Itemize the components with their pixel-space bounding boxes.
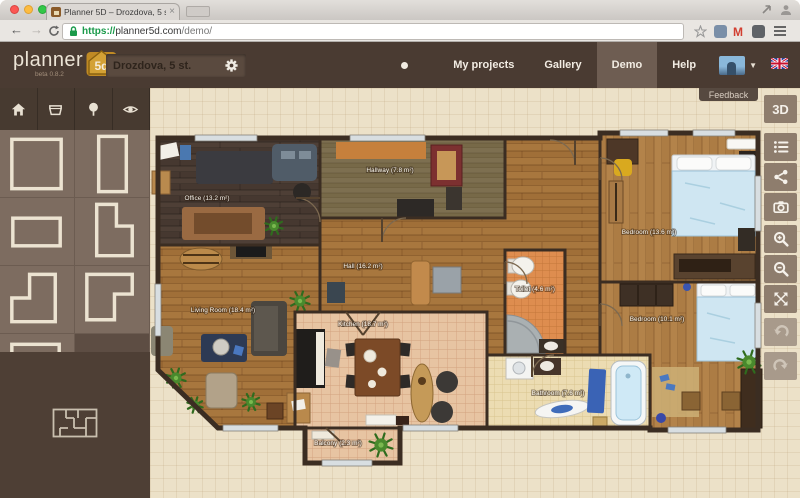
url-input[interactable]: https://planner5d.com/demo/ bbox=[62, 23, 684, 40]
logo-version: beta 0.8.2 bbox=[35, 71, 64, 78]
furniture-item[interactable] bbox=[540, 361, 554, 371]
window-close-button[interactable] bbox=[10, 5, 19, 14]
window[interactable] bbox=[195, 135, 257, 141]
furniture-item[interactable] bbox=[411, 364, 433, 422]
rooms-tab[interactable] bbox=[0, 88, 38, 130]
room-shape-selected-empty[interactable] bbox=[75, 334, 150, 352]
floorplan-canvas[interactable]: Office (13.2 m²)Hallway (7.8 m²)Hall (16… bbox=[150, 88, 800, 498]
tab-close-icon[interactable]: × bbox=[169, 7, 175, 17]
furniture-item[interactable] bbox=[236, 246, 266, 257]
zoom-out-icon bbox=[772, 260, 790, 278]
room-shape-square[interactable] bbox=[0, 130, 75, 198]
furniture-item[interactable] bbox=[364, 350, 376, 362]
user-avatar[interactable] bbox=[719, 56, 745, 75]
furniture-item[interactable] bbox=[620, 284, 673, 306]
furniture-item[interactable] bbox=[316, 332, 324, 385]
furniture-item[interactable] bbox=[436, 371, 458, 393]
left-toolbar bbox=[0, 88, 150, 130]
furniture-item[interactable] bbox=[513, 362, 525, 374]
furniture-tab[interactable] bbox=[38, 88, 76, 130]
kitchen-label: Kitchen (18.7 m²) bbox=[338, 321, 388, 328]
objects-list-button[interactable] bbox=[764, 133, 797, 161]
plants-tab[interactable] bbox=[75, 88, 113, 130]
furniture-item[interactable] bbox=[697, 297, 757, 361]
tree-icon bbox=[85, 101, 102, 118]
reload-icon[interactable] bbox=[48, 25, 60, 37]
room-shape-l-notch[interactable] bbox=[75, 266, 150, 334]
furniture-item[interactable] bbox=[433, 267, 461, 293]
status-dot-icon bbox=[401, 62, 408, 69]
right-toolbar: 3D bbox=[764, 95, 797, 380]
nav-demo[interactable]: Demo bbox=[597, 42, 658, 88]
window[interactable] bbox=[755, 303, 761, 348]
furniture-item[interactable] bbox=[327, 282, 345, 303]
forward-button[interactable]: → bbox=[30, 22, 43, 37]
app-header: planner beta 0.8.2 5d Drozdova, 5 st. My… bbox=[0, 42, 800, 88]
gmail-extension-icon[interactable]: M bbox=[733, 25, 743, 39]
furniture-item[interactable] bbox=[727, 139, 757, 149]
furniture-item[interactable] bbox=[682, 392, 700, 410]
bathroom-label: Bathroom (7.6 m²) bbox=[532, 390, 585, 397]
office-label: Office (13.2 m²) bbox=[184, 195, 229, 202]
furniture-item[interactable] bbox=[378, 368, 387, 377]
furniture-item[interactable] bbox=[267, 403, 283, 419]
furniture-item[interactable] bbox=[418, 377, 426, 385]
hallway-label: Hallway (7.8 m²) bbox=[366, 167, 413, 174]
furniture-item[interactable] bbox=[656, 413, 666, 423]
zoom-in-icon bbox=[772, 230, 790, 248]
project-settings-gear-icon[interactable] bbox=[224, 58, 239, 73]
balcony-label: Balcony (2.3 m²) bbox=[314, 440, 362, 447]
furniture-item[interactable] bbox=[626, 374, 631, 379]
nav-help[interactable]: Help bbox=[657, 42, 711, 88]
window-minimize-button[interactable] bbox=[24, 5, 33, 14]
share-button[interactable] bbox=[764, 163, 797, 191]
room-shape-partial[interactable] bbox=[0, 334, 75, 352]
zoom-out-button[interactable] bbox=[764, 255, 797, 283]
furniture-item[interactable] bbox=[738, 228, 755, 251]
zoom-in-button[interactable] bbox=[764, 225, 797, 253]
window[interactable] bbox=[350, 135, 425, 141]
language-flag-icon[interactable] bbox=[771, 56, 788, 74]
redo-button[interactable] bbox=[764, 352, 797, 380]
browser-tab[interactable]: Planner 5D – Drozdova, 5 st. × bbox=[46, 3, 180, 20]
room-shape-l[interactable] bbox=[75, 198, 150, 266]
view-3d-button[interactable]: 3D bbox=[764, 95, 797, 123]
furniture-item[interactable] bbox=[299, 151, 311, 159]
room-shape-l-step[interactable] bbox=[0, 266, 75, 334]
feedback-button[interactable]: Feedback bbox=[699, 88, 758, 101]
planner5d-favicon-icon bbox=[51, 7, 61, 17]
profile-icon[interactable] bbox=[780, 4, 792, 16]
camera-icon bbox=[772, 198, 790, 216]
furniture-item[interactable] bbox=[194, 213, 252, 234]
furniture-item[interactable] bbox=[325, 348, 341, 368]
nav-gallery[interactable]: Gallery bbox=[529, 42, 596, 88]
hall-label: Hall (16.2 m²) bbox=[343, 263, 382, 270]
window[interactable] bbox=[668, 427, 726, 433]
furniture-item[interactable] bbox=[206, 373, 237, 408]
window[interactable] bbox=[223, 425, 278, 431]
furniture-item[interactable] bbox=[722, 392, 740, 410]
eye-icon bbox=[122, 101, 139, 118]
planner5d-logo[interactable]: planner beta 0.8.2 5d bbox=[13, 49, 117, 77]
furniture-item[interactable] bbox=[152, 171, 170, 194]
furniture-item[interactable] bbox=[677, 157, 712, 170]
window[interactable] bbox=[620, 130, 668, 136]
furniture-icon bbox=[47, 101, 64, 118]
sidebar-bottom-panel bbox=[0, 352, 150, 498]
browser-window: Planner 5D – Drozdova, 5 st. × ← → https… bbox=[0, 0, 800, 498]
furniture-item[interactable] bbox=[614, 159, 632, 176]
fullscreen-icon bbox=[772, 290, 790, 308]
room-shape-rect-horizontal[interactable] bbox=[0, 198, 75, 266]
furniture-item[interactable] bbox=[151, 326, 173, 356]
project-name: Drozdova, 5 st. bbox=[113, 60, 224, 72]
expand-window-icon[interactable] bbox=[761, 4, 772, 15]
furniture-item[interactable] bbox=[281, 151, 295, 159]
browser-tab-strip: Planner 5D – Drozdova, 5 st. × bbox=[0, 0, 800, 20]
furniture-item[interactable] bbox=[730, 285, 755, 296]
window[interactable] bbox=[755, 176, 761, 231]
furniture-item[interactable] bbox=[366, 415, 396, 425]
furniture-item[interactable] bbox=[437, 151, 456, 180]
furniture-item[interactable] bbox=[368, 380, 376, 388]
window[interactable] bbox=[322, 460, 372, 466]
nav-my-projects[interactable]: My projects bbox=[438, 42, 529, 88]
window[interactable] bbox=[403, 425, 458, 431]
tab-title: Planner 5D – Drozdova, 5 st. bbox=[64, 7, 166, 17]
window[interactable] bbox=[155, 284, 161, 336]
window[interactable] bbox=[693, 130, 735, 136]
fullscreen-button[interactable] bbox=[764, 285, 797, 313]
bedroom-bottom-label: Bedroom (10.1 m²) bbox=[630, 316, 685, 323]
furniture-item[interactable] bbox=[411, 261, 430, 305]
furniture-item[interactable] bbox=[701, 285, 726, 296]
furniture-item[interactable] bbox=[446, 187, 462, 210]
undo-icon bbox=[772, 323, 790, 341]
furniture-item[interactable] bbox=[355, 339, 400, 396]
undo-button[interactable] bbox=[764, 318, 797, 346]
floorplan-svg[interactable]: Office (13.2 m²)Hallway (7.8 m²)Hall (16… bbox=[150, 88, 800, 498]
extension-dark-icon[interactable] bbox=[752, 25, 765, 38]
https-lock-icon bbox=[69, 26, 78, 37]
visibility-tab[interactable] bbox=[113, 88, 151, 130]
living-room-label: Living Room (18.4 m²) bbox=[191, 307, 255, 314]
bedroom-top-label: Bedroom (13.6 m²) bbox=[622, 229, 677, 236]
url-path: /demo/ bbox=[181, 26, 212, 37]
furniture-item[interactable] bbox=[336, 142, 426, 159]
furniture-item[interactable] bbox=[587, 369, 606, 414]
furniture-item[interactable] bbox=[396, 416, 409, 425]
back-button[interactable]: ← bbox=[10, 22, 23, 37]
url-scheme: https:// bbox=[82, 26, 115, 37]
user-menu-caret-icon[interactable]: ▼ bbox=[749, 61, 757, 70]
new-tab-button[interactable] bbox=[186, 6, 210, 17]
furniture-item[interactable] bbox=[397, 199, 434, 217]
logo-text: planner bbox=[13, 49, 83, 71]
browser-address-bar: ← → https://planner5d.com/demo/ M bbox=[0, 20, 800, 42]
room-shape-rect-vertical[interactable] bbox=[75, 130, 150, 198]
furniture-item[interactable] bbox=[180, 145, 191, 160]
furniture-item[interactable] bbox=[272, 144, 317, 181]
bookmark-star-icon[interactable] bbox=[694, 25, 707, 38]
room-shape-panel bbox=[0, 130, 150, 352]
url-host: planner5d.com bbox=[115, 26, 181, 37]
furniture-item[interactable] bbox=[683, 283, 691, 291]
redo-icon bbox=[772, 357, 790, 375]
furniture-item[interactable] bbox=[196, 151, 273, 184]
toilet-label: Toilet (4.6 m²) bbox=[515, 286, 555, 293]
header-nav: My projectsGalleryDemoHelp▼ bbox=[401, 42, 800, 88]
furniture-item[interactable] bbox=[431, 401, 453, 423]
extension-icon[interactable] bbox=[714, 25, 727, 38]
list-icon bbox=[772, 138, 790, 156]
share-icon bbox=[772, 168, 790, 186]
home-icon bbox=[10, 101, 27, 118]
project-name-field[interactable]: Drozdova, 5 st. bbox=[106, 54, 246, 77]
mini-floorplan-icon[interactable] bbox=[52, 408, 98, 438]
furniture-item[interactable] bbox=[679, 259, 731, 272]
furniture-item[interactable] bbox=[180, 248, 222, 270]
furniture-item[interactable] bbox=[213, 339, 229, 355]
furniture-item[interactable] bbox=[672, 171, 755, 236]
snapshot-button[interactable] bbox=[764, 193, 797, 221]
furniture-item[interactable] bbox=[716, 157, 751, 170]
furniture-item[interactable] bbox=[544, 342, 558, 351]
furniture-item[interactable] bbox=[254, 306, 278, 351]
chrome-menu-icon[interactable] bbox=[773, 25, 787, 37]
